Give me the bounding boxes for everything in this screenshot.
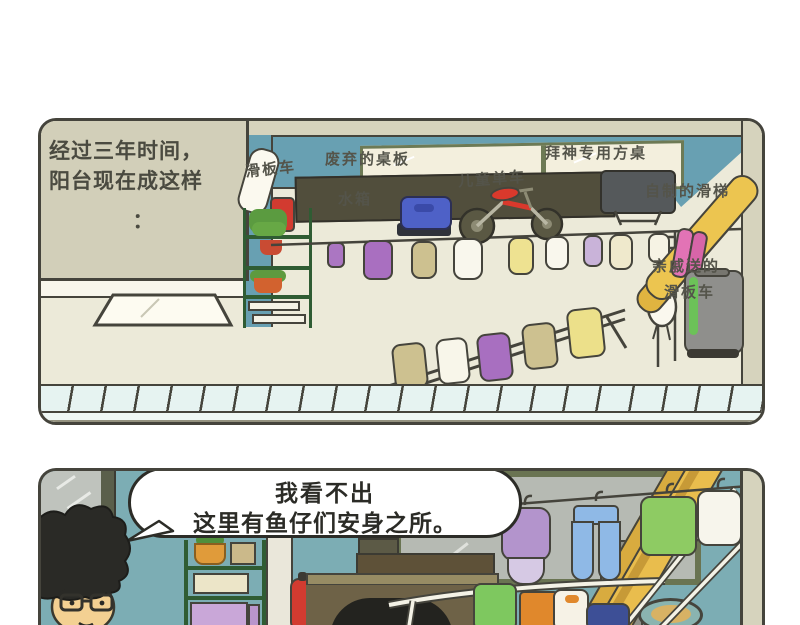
label-water-tank: 水箱: [338, 188, 372, 209]
clothes-item-purple-small: [327, 242, 345, 268]
table-legs: [615, 211, 661, 225]
character-eye: [100, 601, 105, 606]
character-eye: [70, 601, 75, 606]
label-relatives-gift-2: 滑板车: [664, 281, 715, 302]
main-character: [41, 505, 130, 625]
railing-ledge: [41, 413, 762, 422]
bag-strings: [653, 325, 670, 340]
clothes-item-lilac: [583, 235, 603, 267]
label-homemade-slide: 自制的滑梯: [645, 180, 730, 201]
comic-panel-room-scene: 我看不出 这里有鱼仔们安身之所。: [38, 468, 765, 625]
clothes-item-purple: [363, 240, 393, 280]
rack-clothes-yellow: [565, 306, 606, 359]
clothes-item-yellow: [508, 237, 534, 275]
balcony-railing: [41, 384, 762, 413]
clothes-item-white: [545, 236, 569, 270]
kids-bike: [460, 186, 562, 243]
comic-page: 经过三年时间， 阳台现在成这样 ：: [0, 0, 800, 625]
skylight-window: [95, 295, 231, 325]
label-worship-square-table: 拜神专用方桌: [545, 142, 647, 163]
rack-clothes-white: [435, 336, 472, 385]
panel2-line-art-front: [41, 471, 762, 625]
label-relatives-gift-1: 亲戚送的: [652, 255, 720, 276]
clothes-item-tan: [411, 241, 437, 279]
scooter-wheels: [687, 349, 739, 358]
bubble-tail: [127, 521, 173, 541]
comic-panel-balcony-overview: 经过三年时间， 阳台现在成这样 ：: [38, 118, 765, 425]
clothes-item-cream: [609, 234, 633, 270]
label-discarded-table-board: 废弃的桌板: [325, 148, 410, 169]
rack-clothes-tan: [521, 321, 560, 370]
rack-clothes-purple: [476, 331, 515, 382]
clothes-item-white: [453, 238, 483, 280]
